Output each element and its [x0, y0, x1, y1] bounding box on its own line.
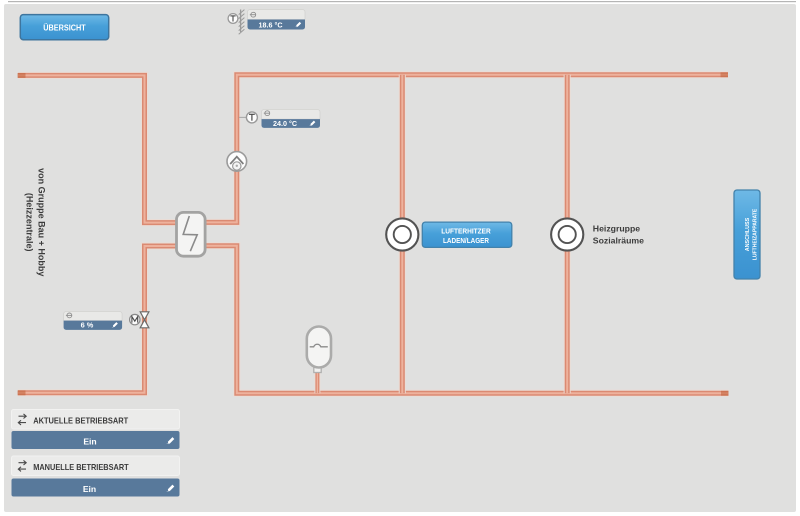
svg-text:18.6 °C: 18.6 °C	[259, 20, 284, 29]
svg-text:LADEN/LAGER: LADEN/LAGER	[443, 238, 489, 245]
svg-text:Ein: Ein	[83, 484, 96, 494]
svg-text:AKTUELLE BETRIEBSART: AKTUELLE BETRIEBSART	[33, 416, 128, 425]
svg-text:Sozialräume: Sozialräume	[593, 236, 644, 246]
svg-text:LUFTERHITZER: LUFTERHITZER	[441, 228, 491, 235]
svg-text:6 %: 6 %	[81, 321, 94, 330]
svg-text:von Gruppe Bau + Hobby: von Gruppe Bau + Hobby	[36, 168, 46, 276]
svg-text:Heizgruppe: Heizgruppe	[593, 224, 640, 234]
svg-text:ANSCHLUSS: ANSCHLUSS	[745, 217, 751, 251]
svg-text:Ein: Ein	[83, 437, 96, 447]
svg-text:ÜBERSICHT: ÜBERSICHT	[43, 23, 86, 32]
svg-text:LUFTHEIZAPPARATE: LUFTHEIZAPPARATE	[753, 208, 759, 260]
svg-text:24.0 °C: 24.0 °C	[273, 119, 298, 128]
svg-text:MANUELLE BETRIEBSART: MANUELLE BETRIEBSART	[33, 463, 129, 472]
svg-text:(Heizzentrale): (Heizzentrale)	[24, 193, 34, 252]
